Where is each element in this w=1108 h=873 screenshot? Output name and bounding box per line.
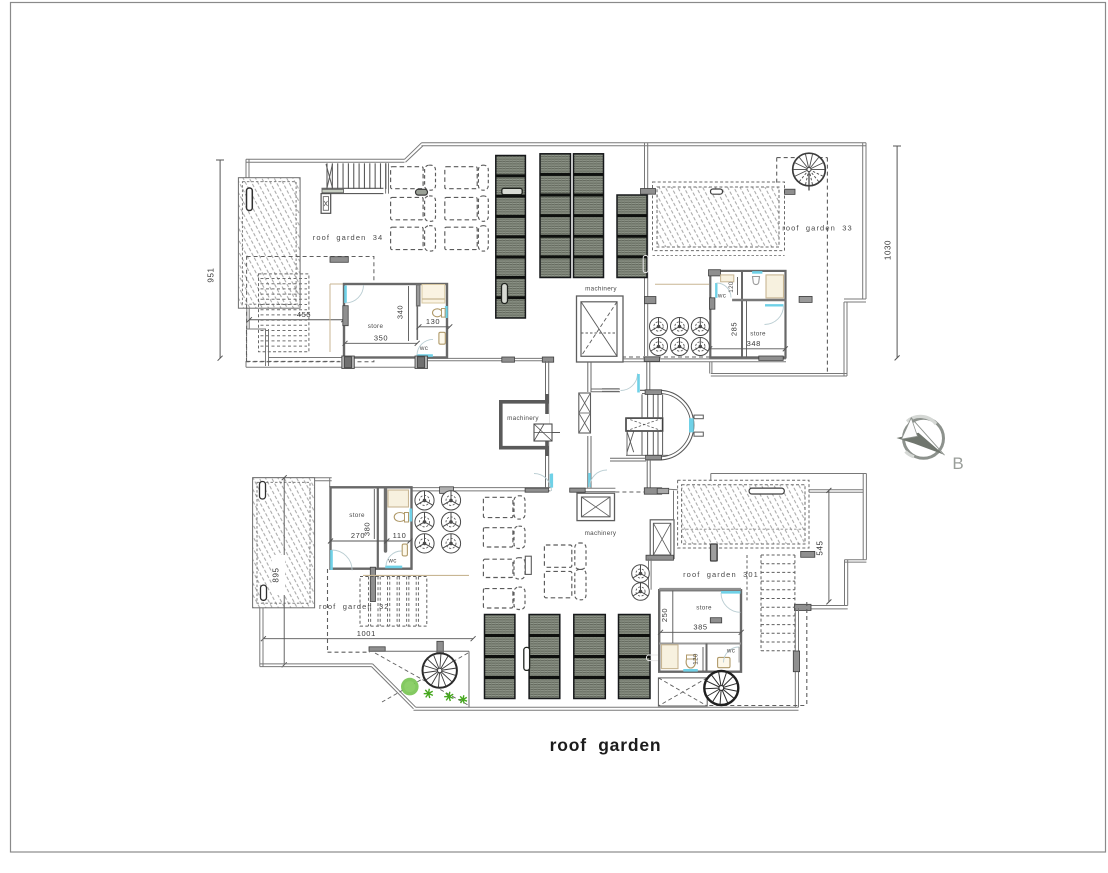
svg-text:roof garden 33: roof garden 33: [782, 224, 853, 233]
svg-text:895: 895: [272, 567, 281, 582]
svg-text:120: 120: [728, 281, 735, 293]
svg-text:roof garden 32: roof garden 32: [319, 602, 390, 611]
svg-text:B: B: [952, 454, 963, 473]
svg-text:120: 120: [693, 653, 700, 665]
svg-text:roof garden 301: roof garden 301: [683, 570, 759, 579]
svg-text:350: 350: [374, 334, 388, 343]
svg-text:1030: 1030: [884, 240, 893, 260]
svg-text:wc: wc: [726, 648, 735, 655]
svg-text:wc: wc: [419, 345, 428, 352]
svg-text:455: 455: [297, 310, 311, 319]
svg-text:545: 545: [816, 540, 825, 555]
svg-text:348: 348: [747, 339, 761, 348]
svg-text:wc: wc: [717, 293, 726, 300]
svg-text:store: store: [349, 512, 365, 519]
svg-text:340: 340: [396, 305, 405, 319]
svg-text:250: 250: [660, 608, 669, 622]
svg-text:machinery: machinery: [507, 415, 539, 422]
svg-text:1001: 1001: [357, 629, 376, 638]
svg-text:385: 385: [693, 623, 707, 632]
svg-text:110: 110: [393, 531, 407, 540]
svg-text:285: 285: [729, 322, 738, 336]
svg-text:machinery: machinery: [585, 530, 617, 537]
svg-text:machinery: machinery: [585, 286, 617, 293]
svg-text:130: 130: [426, 317, 440, 326]
svg-text:380: 380: [363, 522, 372, 536]
svg-text:store: store: [368, 323, 384, 330]
svg-text:951: 951: [207, 267, 216, 282]
svg-text:roof garden 34: roof garden 34: [313, 233, 384, 242]
svg-text:store: store: [696, 605, 712, 612]
svg-text:store: store: [750, 331, 766, 338]
svg-text:roof garden: roof garden: [550, 735, 662, 755]
svg-text:wc: wc: [387, 558, 396, 565]
